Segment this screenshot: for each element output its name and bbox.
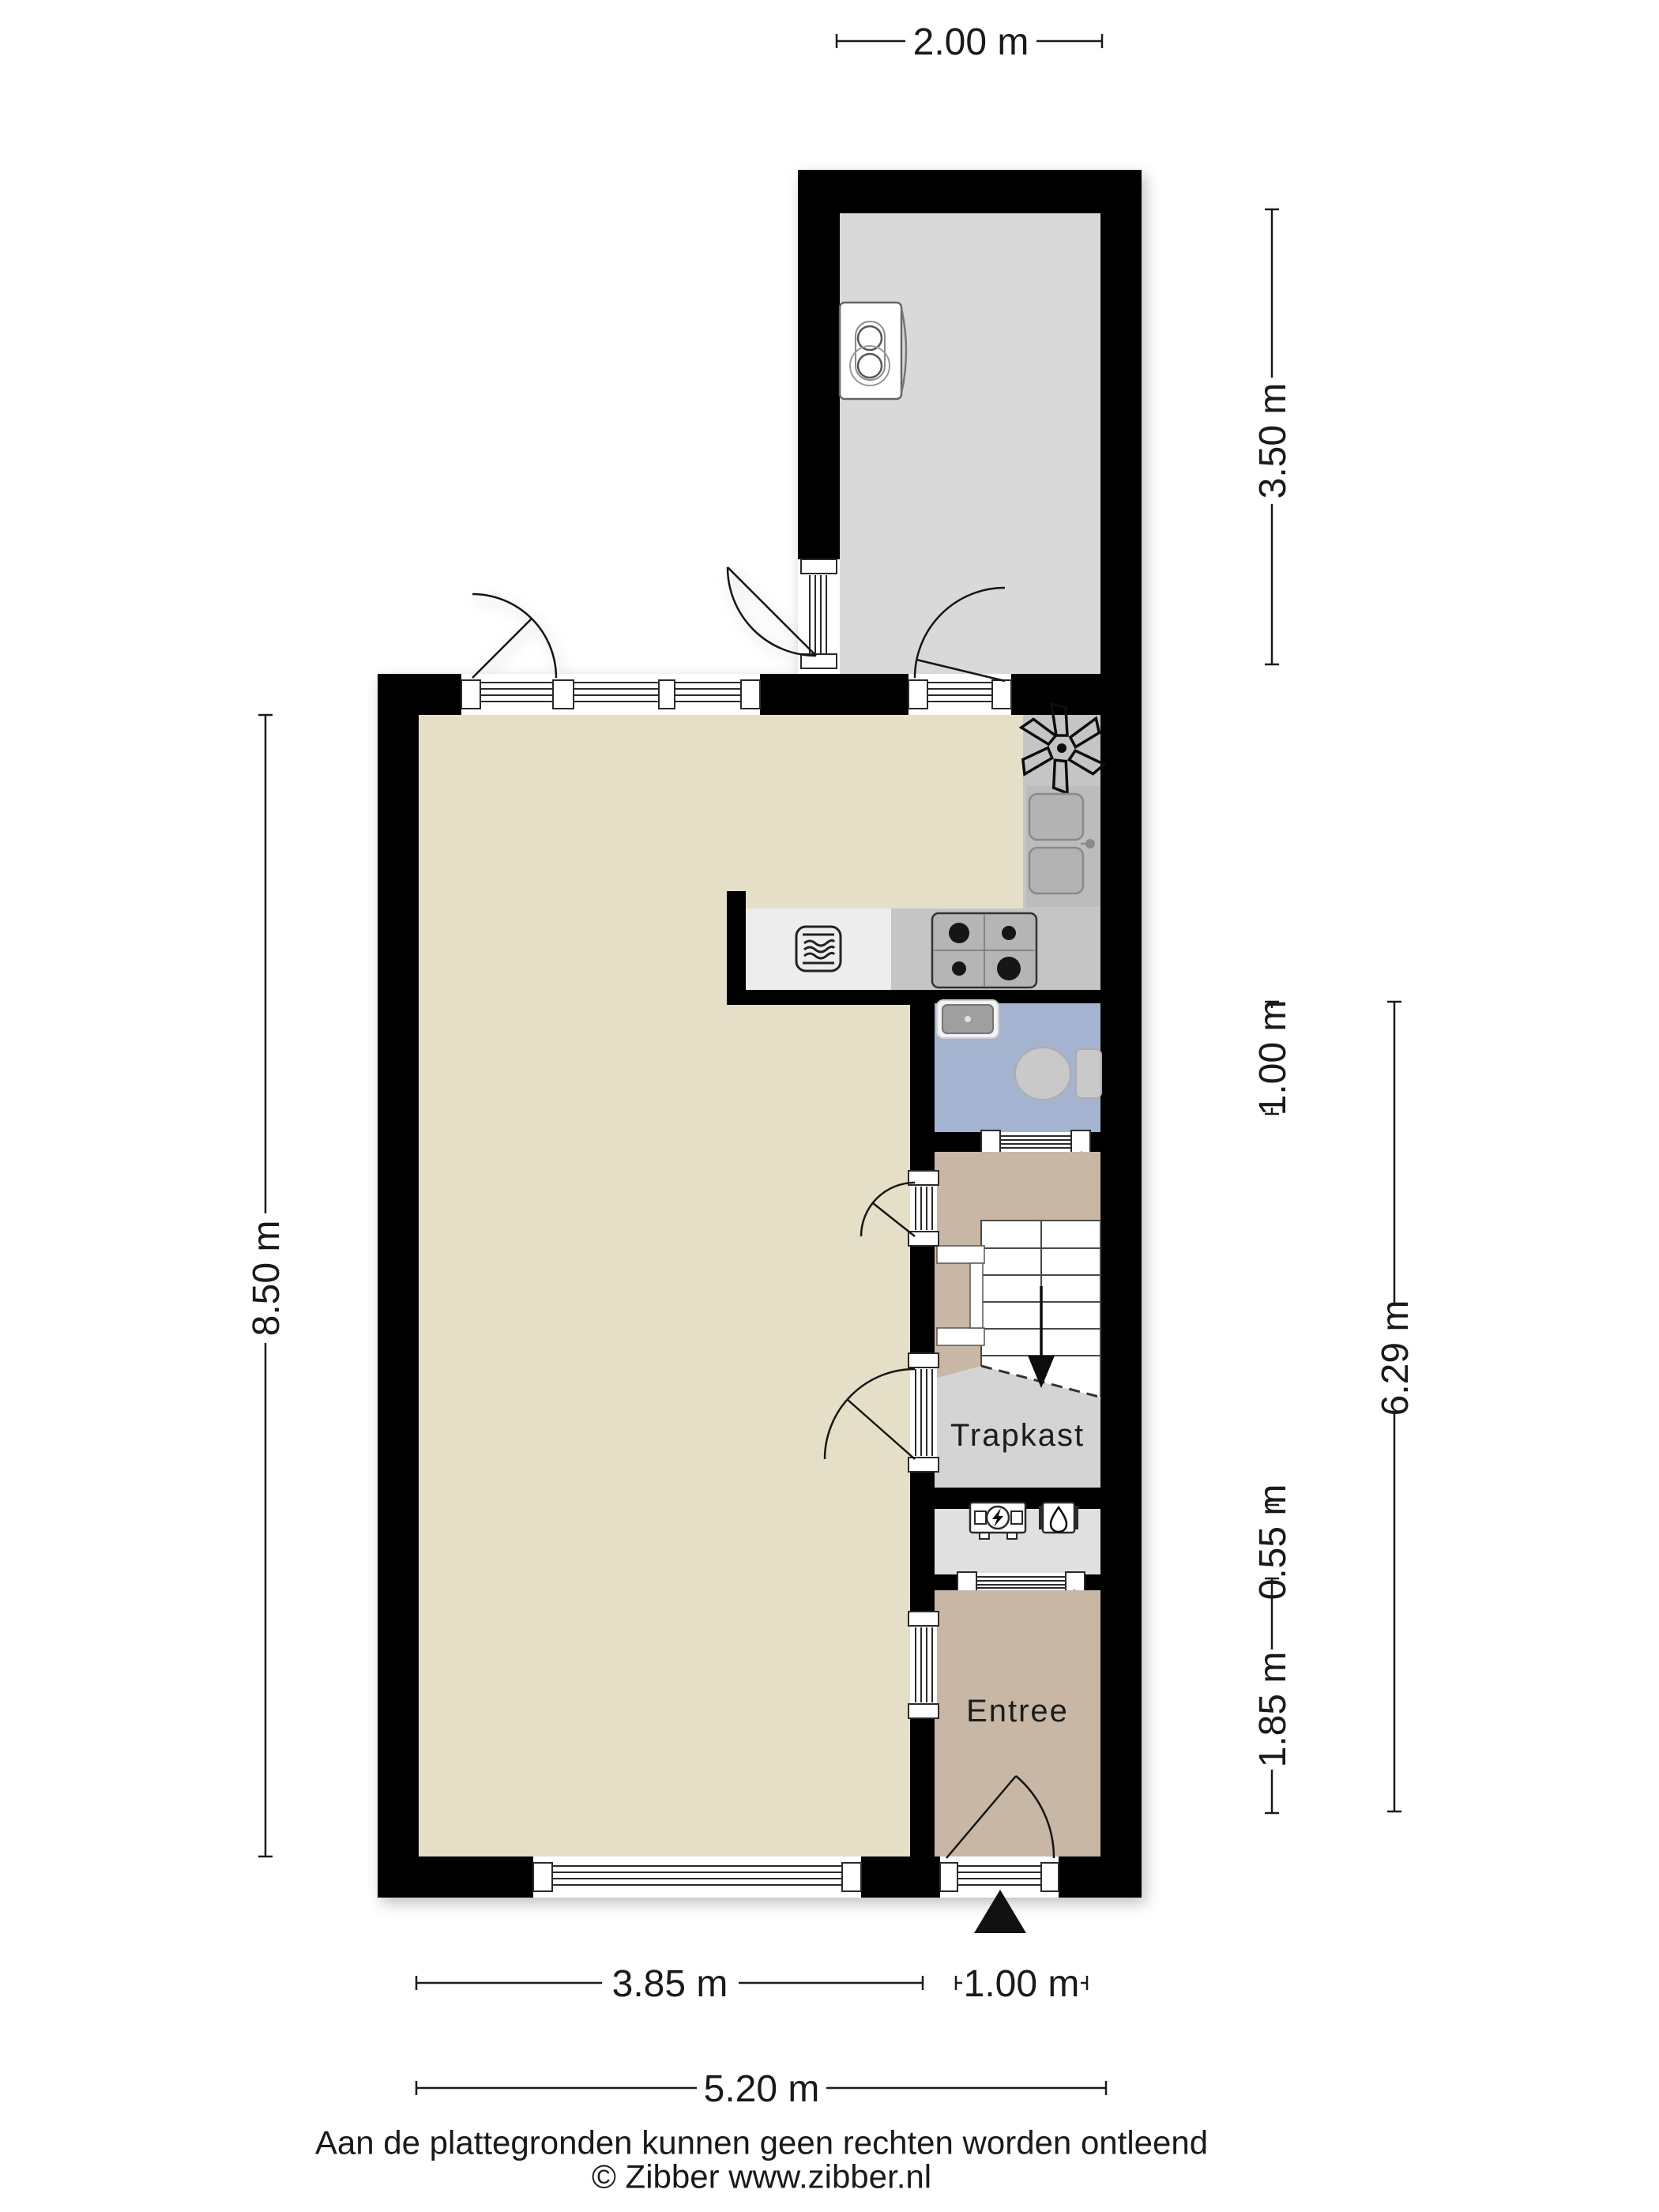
- dim-meter-height: 0.55 m: [1252, 1484, 1294, 1601]
- window-top-living: [461, 594, 760, 715]
- dim-entree-width: 1.00 m: [956, 1963, 1087, 2005]
- dim-left-height: 8.50 m: [246, 715, 288, 1856]
- floor-plan: Trapkast: [0, 0, 1659, 2212]
- dim-top-width: 2.00 m: [837, 21, 1102, 63]
- boiler-icon: [840, 303, 906, 399]
- floor-plan-page: Trapkast: [0, 0, 1659, 2212]
- dim-meter-height-label: 0.55 m: [1252, 1484, 1294, 1601]
- trapkast-label: Trapkast: [950, 1418, 1085, 1453]
- kitchen-appliance-block: [746, 908, 891, 990]
- washbasin-icon: [937, 1000, 999, 1038]
- dim-total-width: 5.20 m: [416, 2068, 1106, 2110]
- dim-total-width-label: 5.20 m: [704, 2068, 820, 2110]
- footer-disclaimer: Aan de plattegronden kunnen geen rechten…: [315, 2124, 1208, 2161]
- entree-room: Entree: [908, 1590, 1100, 1898]
- dim-top-width-label: 2.00 m: [913, 21, 1029, 63]
- dim-annex-height: 3.50 m: [1252, 209, 1294, 664]
- electric-meter-icon: [970, 1503, 1025, 1539]
- dim-entree-height: 1.85 m: [1252, 1578, 1294, 1813]
- annex-room: [728, 213, 1100, 674]
- annex-floor: [840, 213, 1100, 674]
- footer-copyright: © Zibber www.zibber.nl: [592, 2158, 931, 2195]
- dim-left-height-label: 8.50 m: [246, 1221, 288, 1337]
- toilet-icon: [1015, 1048, 1101, 1100]
- entree-label: Entree: [966, 1694, 1069, 1729]
- interior-window: [908, 1612, 939, 1718]
- dim-entree-width-label: 1.00 m: [964, 1963, 1080, 2005]
- dim-right-total-height-label: 6.29 m: [1375, 1300, 1416, 1416]
- dim-living-width: 3.85 m: [416, 1963, 923, 2005]
- dim-right-total-height: 6.29 m: [1375, 1002, 1416, 1811]
- window-bottom-living: [533, 1856, 861, 1898]
- dim-toilet-height-label: 1.00 m: [1252, 1000, 1294, 1116]
- building: Trapkast: [378, 170, 1142, 1898]
- annex-exterior-door: [728, 559, 840, 674]
- dim-entree-height-label: 1.85 m: [1252, 1652, 1294, 1768]
- four-burner-hob-icon: [932, 913, 1036, 987]
- dim-living-width-label: 3.85 m: [612, 1963, 728, 2005]
- dim-annex-height-label: 3.50 m: [1252, 383, 1294, 499]
- gas-meter-icon: [1039, 1503, 1078, 1533]
- dim-toilet-height: 1.00 m: [1252, 1000, 1294, 1116]
